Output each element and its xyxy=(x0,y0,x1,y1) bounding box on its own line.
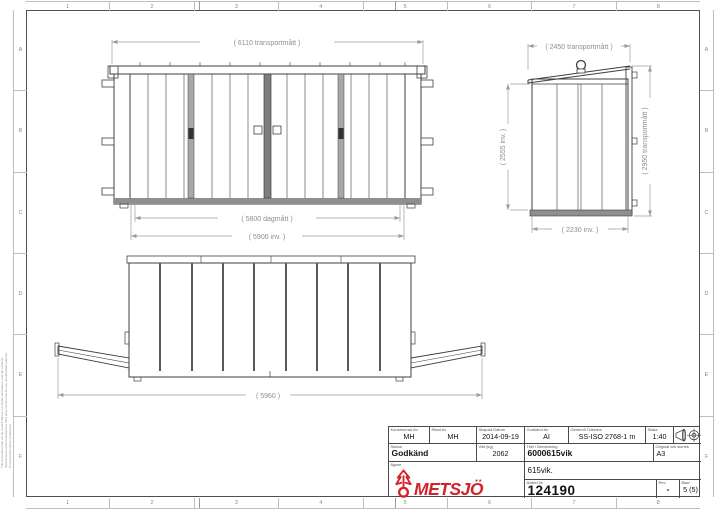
fold-mark xyxy=(199,1,200,10)
row-label: F xyxy=(700,417,713,497)
column-label: 4 xyxy=(279,498,363,508)
column-label: 6 xyxy=(448,2,532,11)
legal-notice: This document must not be copied without… xyxy=(1,348,13,468)
column-label: 7 xyxy=(532,498,616,508)
dimension-label: ( 2555 inv. ) xyxy=(500,129,507,165)
first-angle-projection-icon xyxy=(687,428,701,443)
row-label: A xyxy=(700,10,713,91)
column-label: 3 xyxy=(195,2,279,11)
metsjo-tree-icon xyxy=(393,469,414,498)
side-body xyxy=(528,61,637,217)
logo-text: METSJÖ xyxy=(414,481,483,498)
field-sheet-size: Original ark storlek A3 xyxy=(654,444,701,462)
right-wing xyxy=(411,343,485,368)
center-handle xyxy=(254,126,262,134)
dimension-label: ( 6110 transportmått ) xyxy=(234,39,301,47)
door-lock xyxy=(189,128,194,139)
dimension-label: ( 5900 inv. ) xyxy=(249,234,285,241)
row-label: A xyxy=(14,10,27,91)
row-labels-right: ABCDEF xyxy=(700,10,714,497)
column-label: 8 xyxy=(617,498,700,508)
field-owner: Ägare METSJÖ Ivarssons i Metsjö AB xyxy=(389,462,525,498)
field-created-date: Skapad Datum 2014-09-19 xyxy=(477,427,525,444)
column-label: 8 xyxy=(617,2,700,11)
dimension-label: ( 5800 dagmått ) xyxy=(241,215,292,223)
column-label: 2 xyxy=(110,2,194,11)
dimension-label: ( 2230 inv. ) xyxy=(562,227,598,234)
projection-symbols xyxy=(674,427,701,444)
dimension-label: ( 2450 transportmått ) xyxy=(545,43,612,51)
side-dim-transport-height: ( 2950 transportmått ) xyxy=(632,66,652,216)
row-label: B xyxy=(14,91,27,172)
field-subtitle: 615vik. xyxy=(525,462,701,480)
row-label: C xyxy=(700,173,713,254)
plan-body xyxy=(55,256,485,381)
fold-mark xyxy=(395,1,396,10)
column-label: 1 xyxy=(26,2,110,11)
field-title: Titel / Benämning 6000615vik xyxy=(525,444,654,462)
field-general-tolerance: Generell Tolerans SS-ISO 2768-1 m xyxy=(569,427,646,444)
fold-mark xyxy=(395,498,396,508)
door-lock xyxy=(339,128,344,139)
side-latch xyxy=(411,332,415,344)
column-label: 4 xyxy=(279,2,363,11)
column-label: 5 xyxy=(364,2,448,11)
field-page: Blad 5 (5) xyxy=(680,480,701,498)
front-view-drawing: ( 6110 transportmått ) xyxy=(100,20,435,258)
dimension-label: ( 2950 transportmått ) xyxy=(641,107,649,174)
field-status: Status Godkänd xyxy=(389,444,477,462)
center-handle xyxy=(273,126,281,134)
field-approved-by: Godkänd Av AI xyxy=(525,427,569,444)
hinge-knob xyxy=(632,200,637,206)
row-label: E xyxy=(14,335,27,416)
drawing-sheet: { "sheet": { "columns": ["1","2","3","4"… xyxy=(0,0,720,509)
title-block: Konstruerad Av MH Ritad Av MH Skapad Dat… xyxy=(388,426,700,497)
plan-dim-length: ( 5960 ) xyxy=(58,358,482,400)
row-label: C xyxy=(14,173,27,254)
row-label: D xyxy=(14,254,27,335)
side-dim-inner-width: ( 2230 inv. ) xyxy=(532,216,628,234)
field-designed-by: Konstruerad Av MH xyxy=(389,427,430,444)
column-label: 1 xyxy=(26,498,110,508)
field-article-no: Artikel Nr 124190 xyxy=(525,480,657,498)
cone-projection-icon xyxy=(674,428,687,443)
plan-view-drawing: ( 5960 ) xyxy=(46,242,486,408)
front-body xyxy=(102,62,433,208)
hinge-knob xyxy=(632,72,637,78)
field-revision: Rev - xyxy=(657,480,680,498)
column-label: 6 xyxy=(448,498,532,508)
column-label: 7 xyxy=(532,2,616,11)
side-view-drawing: ( 2450 transportmått ) ( 2555 inv. ) ( 2… xyxy=(478,20,688,252)
side-latch xyxy=(125,332,129,344)
row-label: E xyxy=(700,335,713,416)
row-label: D xyxy=(700,254,713,335)
side-dim-transport-width: ( 2450 transportmått ) xyxy=(528,43,630,70)
column-label: 5 xyxy=(364,498,448,508)
metsjo-logo: METSJÖ Ivarssons i Metsjö AB xyxy=(393,469,522,497)
field-scale: Skala 1:40 xyxy=(646,427,674,444)
column-labels-bottom: 12345678 xyxy=(26,498,700,509)
field-weight: Vikt (kg) 2062 xyxy=(477,444,525,462)
column-label: 3 xyxy=(195,498,279,508)
field-drawn-by: Ritad Av MH xyxy=(430,427,477,444)
row-labels-left: ABCDEF xyxy=(13,10,27,497)
row-label: F xyxy=(14,417,27,497)
row-label: B xyxy=(700,91,713,172)
fold-mark xyxy=(199,498,200,508)
hinge-knob xyxy=(632,138,637,144)
left-wing xyxy=(55,343,129,368)
side-dim-inner-height: ( 2555 inv. ) xyxy=(500,84,530,210)
column-label: 2 xyxy=(110,498,194,508)
front-dim-transport: ( 6110 transportmått ) xyxy=(112,39,423,64)
lifting-eye xyxy=(577,61,586,70)
dimension-label: ( 5960 ) xyxy=(256,393,280,400)
column-labels-top: 12345678 xyxy=(26,1,700,11)
front-dim-opening: ( 5800 dagmått ) xyxy=(135,204,400,223)
